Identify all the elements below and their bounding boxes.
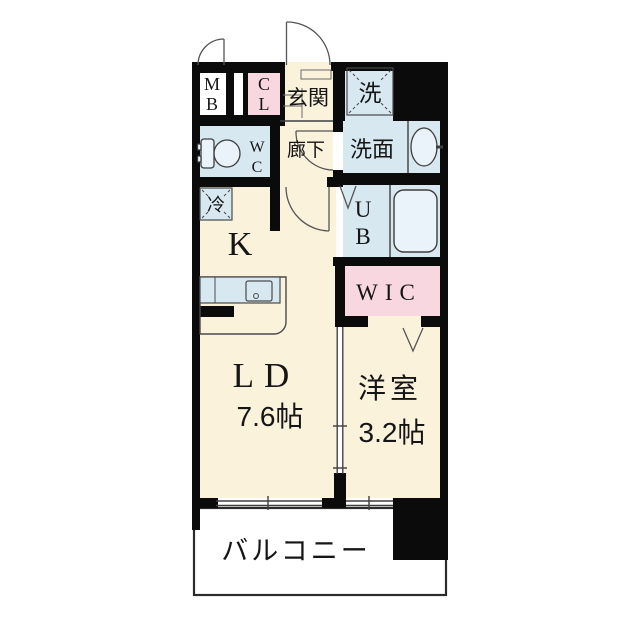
wall-hall-right-upper (333, 121, 343, 132)
fridge-label: 冷 (207, 195, 225, 215)
wall-wic-bottom-left (335, 316, 368, 327)
pillar-top-right (393, 62, 448, 121)
mb-label-line1: M (204, 74, 220, 94)
wall-top-left (192, 62, 285, 71)
mb-label-line2: B (206, 94, 218, 114)
laundry-label: 洗 (359, 80, 382, 106)
kitchen-label: K (228, 226, 253, 263)
wall-below-meter-band (192, 117, 280, 126)
bedroom-size: 3.2帖 (359, 417, 426, 448)
wic-door-opening (368, 316, 421, 327)
wall-stub-bottom-left (192, 498, 218, 508)
room-kitchen-living-floor (200, 185, 336, 498)
hallway-label: 廊下 (287, 139, 325, 161)
wc-label-line2: C (252, 159, 263, 176)
pillar-bottom-right (393, 498, 448, 560)
unit-bath-label-line1: U (355, 197, 372, 222)
unit-bath-label-line2: B (355, 224, 370, 249)
wall-stub-bottom-mid (322, 498, 346, 508)
wall-wc-hall (270, 118, 280, 231)
living-dining-size: 7.6帖 (237, 401, 304, 432)
wc-label-line1: W (249, 139, 265, 156)
toilet-icon (198, 139, 241, 168)
wall-left (192, 62, 200, 530)
room-bedroom-floor (344, 327, 440, 498)
wall-bath-wic (333, 257, 448, 266)
bedroom-label: 洋室 (358, 373, 422, 404)
wall-right (440, 62, 448, 530)
living-dining-label: LD (233, 356, 300, 395)
balcony-label: バルコニー (221, 536, 370, 566)
wall-washroom-bath (333, 173, 448, 185)
floor-plan-image: M B C L 玄関 洗 W C 廊下 洗面 冷 K U B WIC LD 7.… (0, 0, 640, 640)
room-genkan-hall-floor (280, 62, 333, 187)
cl-label-line1: C (258, 74, 270, 94)
shaft-gap (234, 73, 243, 115)
wall-wic-bottom-right (421, 316, 448, 327)
wall-below-wc (192, 177, 280, 187)
cl-label-line2: L (259, 94, 270, 114)
wall-genkan-laundry (333, 62, 345, 121)
genkan-label: 玄関 (287, 87, 329, 110)
bathtub-icon (394, 190, 437, 252)
floor-plan-svg: M B C L 玄関 洗 W C 廊下 洗面 冷 K U B WIC LD 7.… (0, 0, 640, 640)
wic-label: WIC (356, 280, 422, 305)
washroom-label: 洗面 (350, 137, 394, 162)
